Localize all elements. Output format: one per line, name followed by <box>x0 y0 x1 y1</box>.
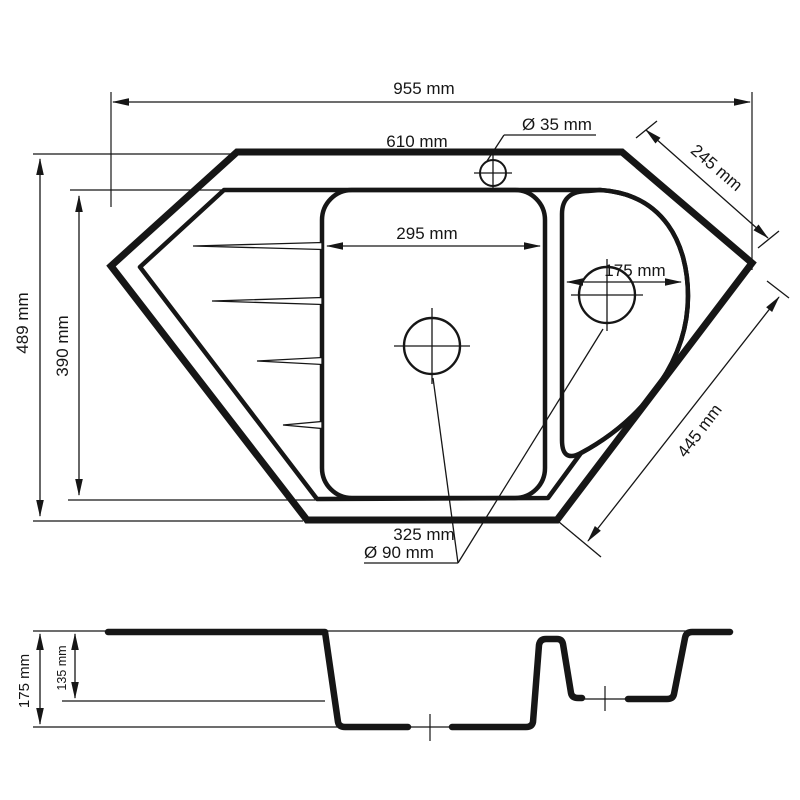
dim-overall-depth: 489 mm <box>13 159 40 516</box>
dim-main-bowl-width-label: 295 mm <box>396 224 457 243</box>
dim-overall-width-label: 955 mm <box>393 79 454 98</box>
dim-overall-depth-label: 489 mm <box>13 292 32 353</box>
section-profile-divider <box>452 639 582 727</box>
dim-overall-width: 955 mm <box>113 79 750 102</box>
dim-drain-diameter-label: Ø 90 mm <box>364 543 434 562</box>
drainer-groove <box>283 422 322 429</box>
dim-top-edge-label: 610 mm <box>386 132 447 151</box>
top-plan-view: 955 mm 610 mm Ø 35 mm 245 mm 295 mm 175 … <box>13 79 789 563</box>
side-section-view: 175 mm 135 mm <box>16 631 730 741</box>
dim-small-bowl-depth-label: 135 mm <box>55 645 69 690</box>
dim-total-height: 175 mm <box>16 634 40 724</box>
section-profile-main-bowl-left <box>108 632 408 727</box>
drainer-groove <box>193 243 322 250</box>
main-bowl-drain <box>394 308 470 384</box>
dim-inner-depth: 390 mm <box>53 196 79 495</box>
dim-main-bowl-width: 295 mm <box>327 224 540 246</box>
small-bowl <box>562 190 688 456</box>
dim-bottom-edge-label: 325 mm <box>393 525 454 544</box>
dim-inner-depth-label: 390 mm <box>53 315 72 376</box>
section-profile-right <box>628 632 730 699</box>
dim-small-bowl-width-label: 175 mm <box>604 261 665 280</box>
drainer-groove <box>257 358 322 365</box>
dim-total-height-label: 175 mm <box>16 654 33 708</box>
technical-drawing-page: 955 mm 610 mm Ø 35 mm 245 mm 295 mm 175 … <box>0 0 800 800</box>
dim-lower-right-chamfer: 445 mm <box>559 281 789 557</box>
sink-drawing-canvas: 955 mm 610 mm Ø 35 mm 245 mm 295 mm 175 … <box>0 0 800 800</box>
dim-small-bowl-depth: 135 mm <box>55 634 75 698</box>
dim-upper-right-chamfer-label: 245 mm <box>687 141 746 195</box>
dim-lower-right-chamfer-label: 445 mm <box>673 400 725 460</box>
dim-faucet-hole-label: Ø 35 mm <box>522 115 592 134</box>
faucet-hole <box>474 154 512 192</box>
drainer-groove <box>212 298 322 305</box>
